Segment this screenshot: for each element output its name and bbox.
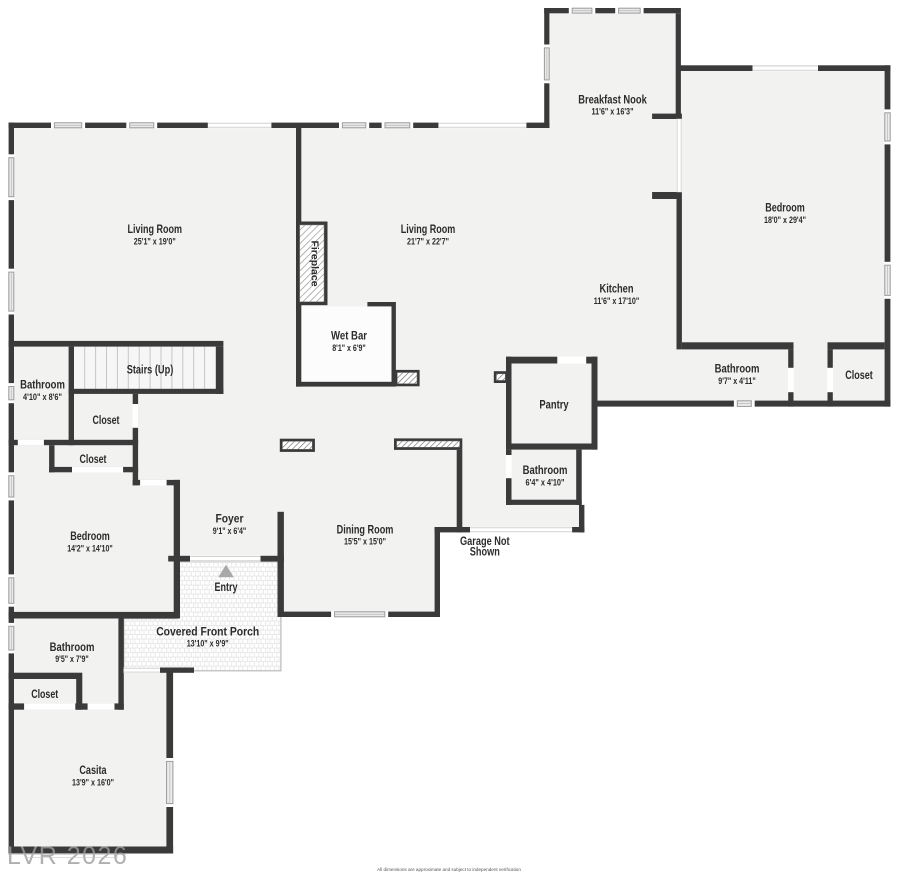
svg-text:Entry: Entry xyxy=(215,580,238,594)
svg-text:Closet: Closet xyxy=(845,368,873,382)
svg-text:14'2" x 14'10": 14'2" x 14'10" xyxy=(67,543,113,553)
svg-text:Bathroom: Bathroom xyxy=(20,378,65,392)
svg-text:9'5" x 7'9": 9'5" x 7'9" xyxy=(55,654,89,664)
svg-text:11'6" x 16'3": 11'6" x 16'3" xyxy=(592,107,634,117)
svg-text:11'6" x 17'10": 11'6" x 17'10" xyxy=(594,296,640,306)
svg-text:Bedroom: Bedroom xyxy=(765,201,805,215)
svg-text:18'0" x 29'4": 18'0" x 29'4" xyxy=(764,215,806,225)
svg-text:8'1" x 6'9": 8'1" x 6'9" xyxy=(332,343,366,353)
svg-text:13'9" x 16'0": 13'9" x 16'0" xyxy=(72,777,114,787)
svg-text:4'10" x 8'6": 4'10" x 8'6" xyxy=(23,392,62,402)
svg-text:21'7" x 22'7": 21'7" x 22'7" xyxy=(407,236,449,246)
svg-text:Bathroom: Bathroom xyxy=(715,362,760,376)
svg-text:6'4" x 4'10": 6'4" x 4'10" xyxy=(526,477,565,487)
svg-text:Closet: Closet xyxy=(80,452,107,466)
svg-text:15'5" x 15'0": 15'5" x 15'0" xyxy=(344,537,386,547)
svg-text:25'1" x 19'0": 25'1" x 19'0" xyxy=(134,236,176,246)
svg-text:13'10" x 9'9": 13'10" x 9'9" xyxy=(187,639,229,649)
svg-text:9'1" x 6'4": 9'1" x 6'4" xyxy=(213,526,247,536)
svg-text:Breakfast Nook: Breakfast Nook xyxy=(578,92,647,106)
svg-text:Casita: Casita xyxy=(79,763,106,777)
svg-text:Living Room: Living Room xyxy=(128,222,183,236)
svg-text:Bedroom: Bedroom xyxy=(70,529,110,543)
svg-text:Pantry: Pantry xyxy=(539,398,568,412)
svg-text:Stairs (Up): Stairs (Up) xyxy=(127,363,174,377)
svg-text:Covered Front Porch: Covered Front Porch xyxy=(156,624,259,638)
svg-text:Kitchen: Kitchen xyxy=(600,282,634,296)
svg-text:Dining Room: Dining Room xyxy=(337,523,394,537)
svg-text:Closet: Closet xyxy=(31,687,58,701)
svg-text:Fireplace: Fireplace xyxy=(309,240,321,286)
svg-text:LVR 2026: LVR 2026 xyxy=(7,842,128,870)
svg-text:Foyer: Foyer xyxy=(216,512,244,526)
svg-text:Closet: Closet xyxy=(93,413,120,427)
svg-text:9'7" x 4'11": 9'7" x 4'11" xyxy=(718,376,756,386)
svg-text:Living Room: Living Room xyxy=(401,222,456,236)
svg-text:All dimensions are approximate: All dimensions are approximate and subje… xyxy=(377,867,521,872)
svg-text:Shown: Shown xyxy=(470,544,500,558)
svg-text:Bathroom: Bathroom xyxy=(523,463,568,477)
svg-text:Wet Bar: Wet Bar xyxy=(331,329,367,343)
svg-text:Bathroom: Bathroom xyxy=(50,640,95,654)
